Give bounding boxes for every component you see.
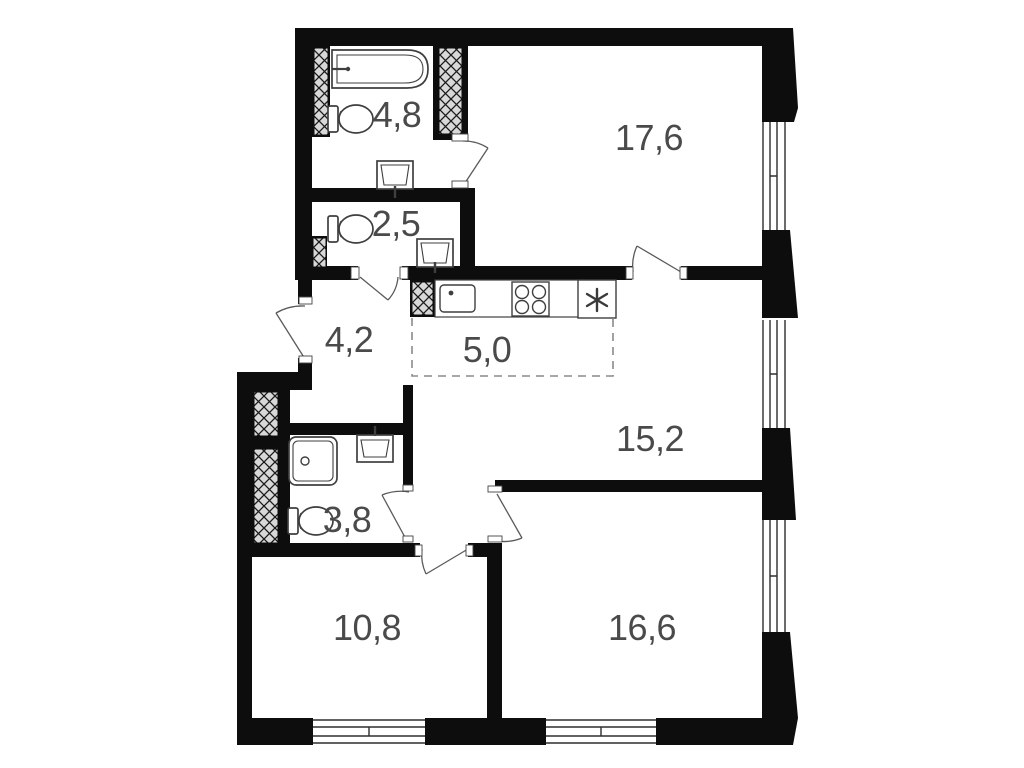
- wall-mid-c: [681, 266, 762, 280]
- kitchen-zone-boundary: [412, 318, 613, 376]
- bathtub-icon: [332, 50, 428, 88]
- room-label-kitchen: 5,0: [463, 329, 512, 370]
- door-room-large: [497, 494, 522, 542]
- wall-top: [295, 28, 775, 46]
- window-room-large-bottom: [546, 720, 656, 743]
- shower-icon: [289, 437, 337, 485]
- entry-door: [276, 306, 305, 359]
- pillar-right-1: [762, 28, 798, 122]
- room-label-bathroom: 3,8: [323, 499, 372, 540]
- room-label-room-small: 10,8: [333, 607, 401, 648]
- window-room-large-side: [763, 520, 785, 632]
- room-label-hallway: 4,2: [325, 319, 374, 360]
- room-label-room-large: 16,6: [608, 607, 676, 648]
- stove-icon: [512, 282, 549, 316]
- shaft-hatch-icon: [439, 48, 462, 134]
- wall-left-upper: [295, 28, 312, 270]
- wall-left-main: [237, 372, 252, 745]
- kitchen-sink-icon: [440, 285, 475, 312]
- door-room-small: [422, 549, 468, 574]
- toilet-icon: [328, 105, 373, 133]
- wall-bottom-b: [425, 718, 546, 745]
- room-label-bedroom-master: 17,6: [615, 117, 683, 158]
- toilet-icon: [328, 215, 373, 243]
- wall-room166-top: [495, 480, 762, 492]
- room-label-bathroom-ensuite: 4,8: [373, 94, 422, 135]
- door-bathroom: [382, 491, 409, 541]
- wall-bath38-bottom: [252, 543, 420, 557]
- window-living: [763, 320, 785, 428]
- shaft-hatch-icon: [254, 392, 278, 436]
- pillar-right-2: [762, 230, 798, 318]
- wall-bottom-a: [237, 718, 313, 745]
- window-master: [763, 122, 785, 230]
- wall-bath-wc: [295, 188, 475, 202]
- shaft-hatch-icon: [254, 449, 278, 543]
- window-room-small: [313, 720, 425, 743]
- wall-bath38-top: [287, 423, 413, 435]
- door-bathroom-ensuite: [463, 141, 488, 186]
- pillar-right-4: [762, 632, 798, 745]
- wall-room-divider: [487, 543, 502, 720]
- wall-bath38-right: [403, 385, 413, 490]
- pillar-right-3: [762, 428, 796, 520]
- wall-mid-b: [402, 266, 632, 280]
- walls: [237, 28, 798, 745]
- wall-wc-right: [460, 188, 475, 268]
- shaft-hatch-icon: [412, 282, 433, 315]
- room-label-wc: 2,5: [372, 203, 421, 244]
- refrigerator-icon: [578, 280, 616, 318]
- floor-plan-page: 4,8 2,5 4,2 5,0 17,6 15,2 3,8 10,8 16,6: [0, 0, 1024, 768]
- floor-plan: 4,8 2,5 4,2 5,0 17,6 15,2 3,8 10,8 16,6: [0, 0, 1024, 768]
- shaft-hatch-icon: [314, 48, 328, 135]
- door-wc: [360, 277, 398, 300]
- door-bedroom-master: [633, 246, 681, 272]
- shaft-hatch-icon: [313, 238, 326, 267]
- room-label-living-area: 15,2: [616, 418, 684, 459]
